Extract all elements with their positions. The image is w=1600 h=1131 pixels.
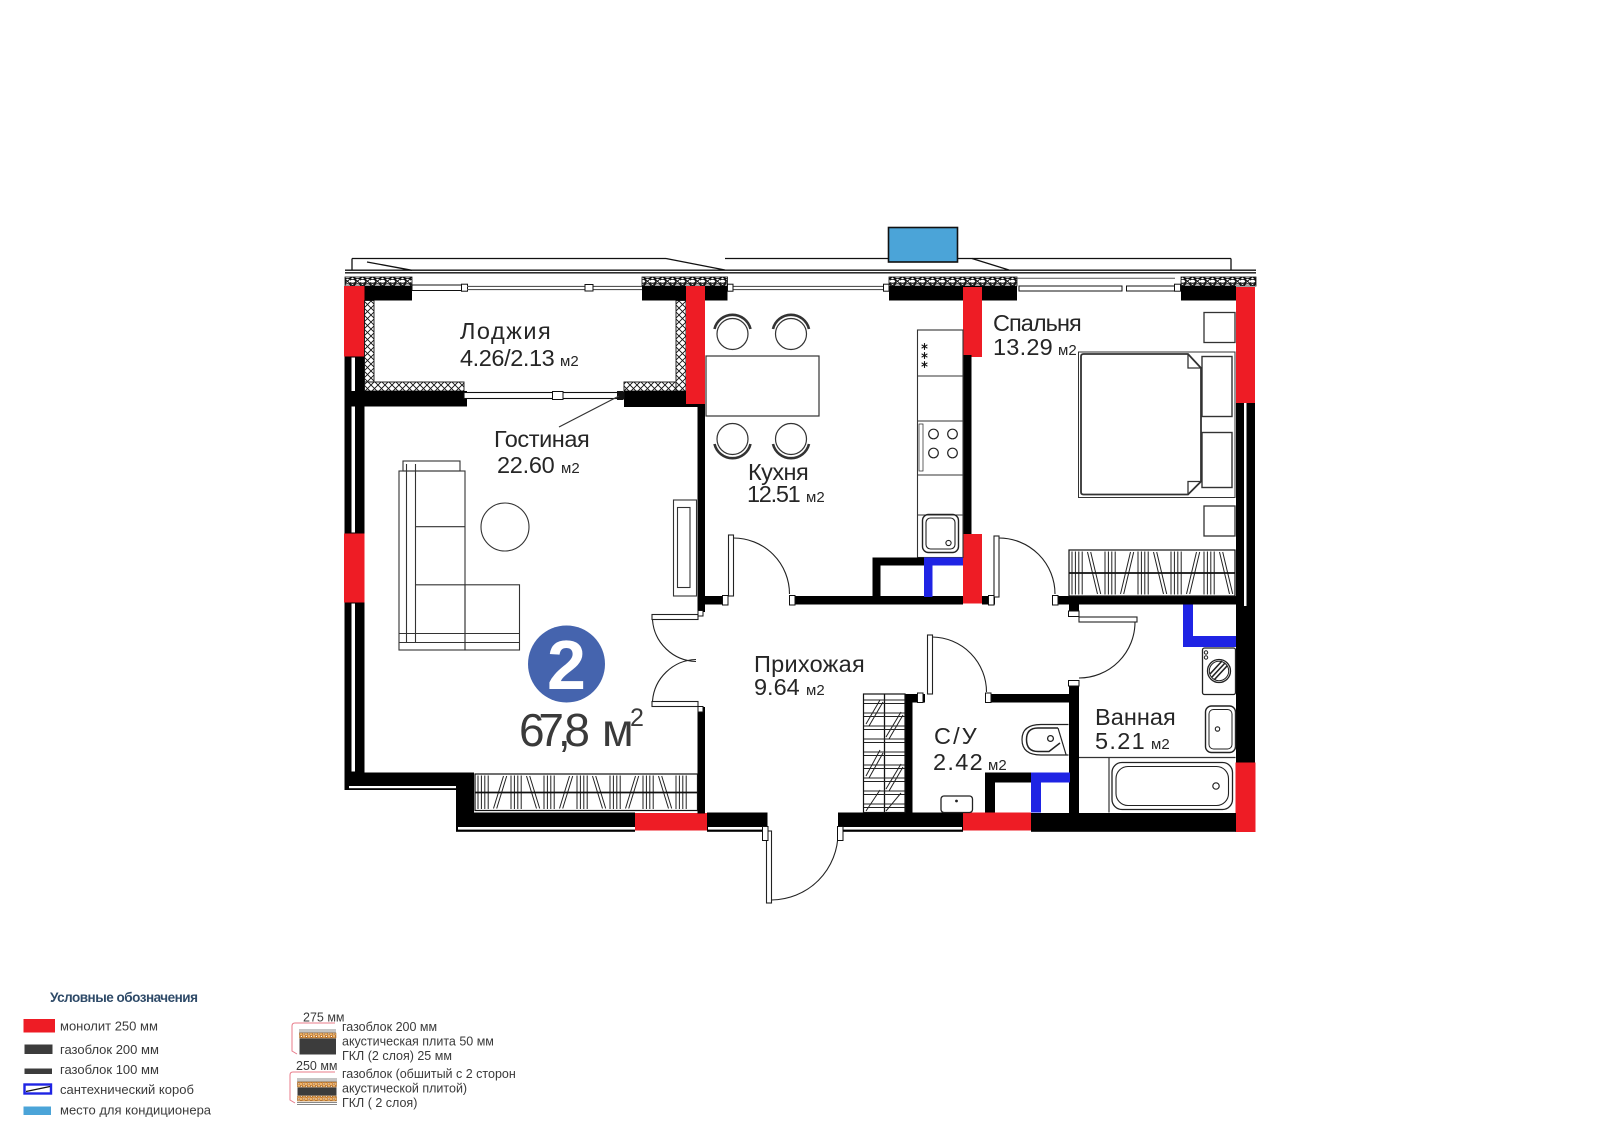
svg-text:м2: м2 [560,353,579,370]
svg-text:акустическая плита 50 мм: акустическая плита 50 мм [342,1035,494,1049]
svg-text:Спальня: Спальня [993,310,1082,336]
svg-text:ГКЛ (2 слоя) 25 мм: ГКЛ (2 слоя) 25 мм [342,1049,452,1063]
svg-text:12.51: 12.51 [747,481,801,507]
svg-text:2.42: 2.42 [933,749,983,775]
svg-text:место для кондиционера: место для кондиционера [60,1103,212,1118]
svg-text:2: 2 [547,626,586,704]
svg-text:4.26/2.13: 4.26/2.13 [460,345,555,371]
svg-text:м2: м2 [988,757,1007,774]
svg-text:С/У: С/У [934,723,978,749]
svg-text:5.21: 5.21 [1095,728,1145,754]
svg-text:монолит 250 мм: монолит 250 мм [60,1019,158,1034]
svg-text:2: 2 [630,704,644,732]
svg-text:275 мм: 275 мм [303,1011,345,1025]
svg-text:22.60: 22.60 [497,452,555,478]
svg-text:газоблок 200 мм: газоблок 200 мм [342,1020,437,1034]
svg-text:акустической плитой): акустической плитой) [342,1082,467,1096]
svg-text:м2: м2 [806,682,825,699]
svg-text:сантехнический короб: сантехнический короб [60,1082,194,1097]
svg-text:67,8: 67,8 [519,704,590,756]
svg-text:газоблок (обшитый с 2 сторон: газоблок (обшитый с 2 сторон [342,1067,516,1081]
svg-text:м2: м2 [1151,736,1170,753]
svg-text:м: м [602,704,634,756]
svg-text:250 мм: 250 мм [296,1059,338,1073]
svg-text:Лоджия: Лоджия [460,318,551,344]
svg-text:9.64: 9.64 [754,674,800,700]
svg-text:Условные обозначения: Условные обозначения [50,990,198,1005]
svg-text:газоблок 100 мм: газоблок 100 мм [60,1062,159,1077]
svg-text:м2: м2 [1058,342,1077,359]
svg-text:Ванная: Ванная [1095,704,1176,730]
svg-text:ГКЛ ( 2 слоя): ГКЛ ( 2 слоя) [342,1096,417,1110]
svg-text:13.29: 13.29 [993,334,1053,360]
svg-text:газоблок 200 мм: газоблок 200 мм [60,1042,159,1057]
svg-text:Гостиная: Гостиная [494,426,590,452]
svg-text:м2: м2 [806,489,825,506]
svg-text:м2: м2 [561,460,580,477]
